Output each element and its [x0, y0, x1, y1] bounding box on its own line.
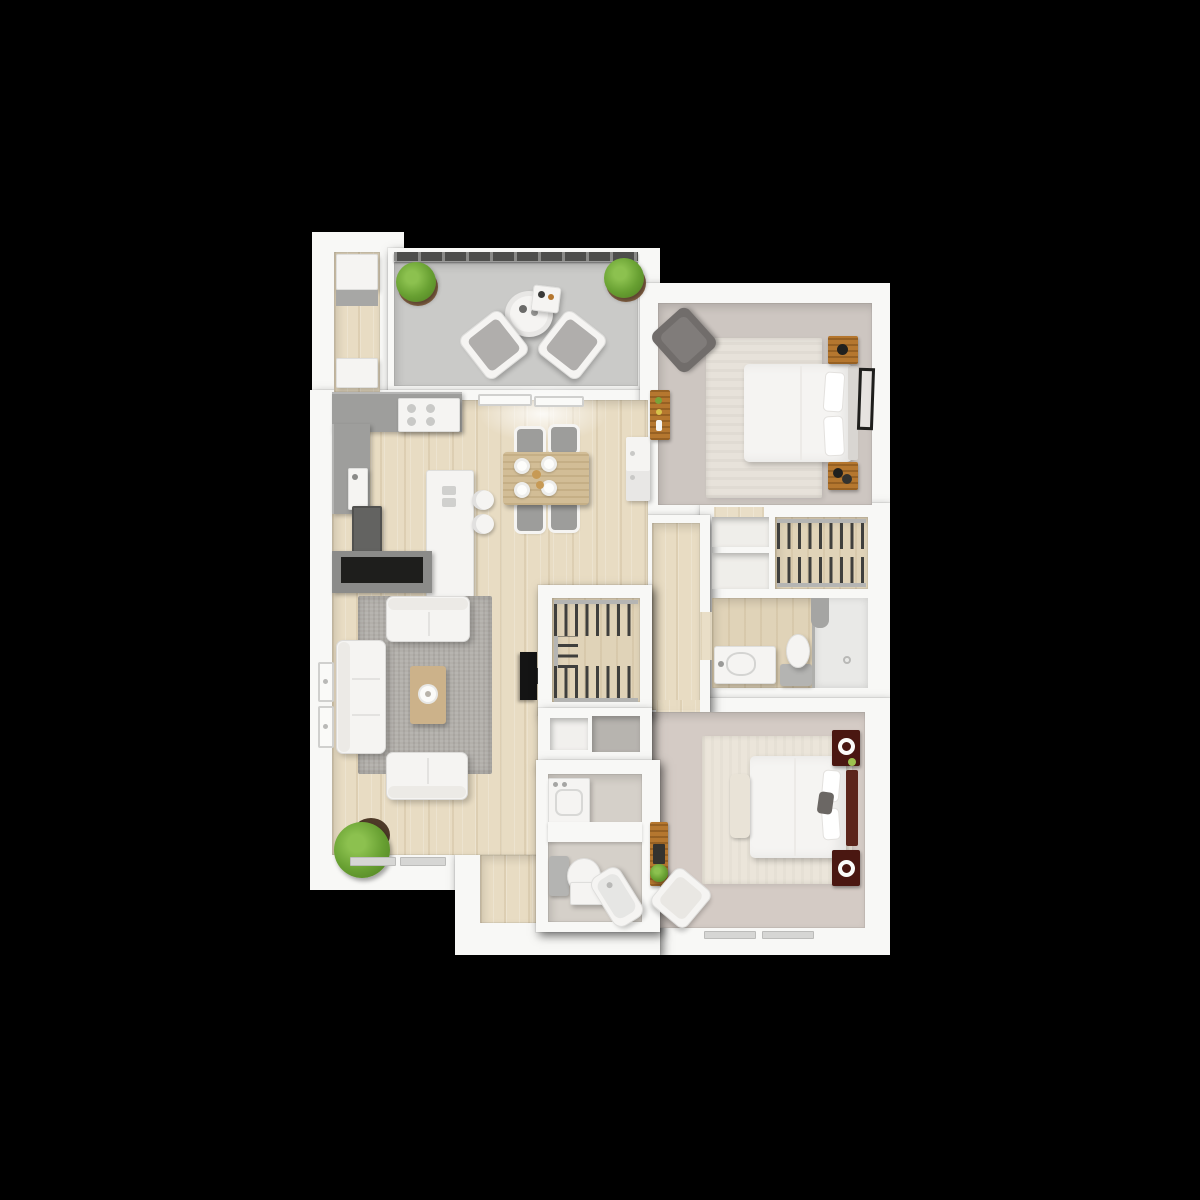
sofa-left [336, 640, 386, 754]
burner-3 [407, 417, 416, 426]
burner-2 [426, 404, 435, 413]
table-lamp-2 [838, 860, 855, 877]
window-handle-1 [323, 679, 328, 684]
tray-item [425, 691, 431, 697]
desk-chair-cushion [658, 875, 704, 922]
nightstand-decor-3 [842, 474, 852, 484]
bedroom2-headboard [846, 770, 858, 846]
duvet-fold-line [800, 366, 802, 460]
hallway-east-floor [652, 523, 700, 710]
bedroom2-window-sill-2 [762, 931, 814, 939]
kitchen-island [426, 470, 474, 598]
burner-1 [407, 404, 416, 413]
loveseat-top [386, 596, 470, 642]
bedroom1-pillow-2 [823, 416, 845, 457]
washer-door [555, 789, 583, 816]
dresser-item-green [655, 397, 662, 404]
closet1-clothes-rod-bottom [777, 557, 866, 587]
bathroom1-door-opening [700, 612, 712, 660]
bedroom2-duvet-fold [794, 758, 796, 856]
living-window-sill-1 [350, 857, 396, 866]
table-lamp-1 [838, 738, 855, 755]
balcony-railing [394, 252, 638, 261]
refrigerator-dark [352, 506, 382, 554]
closet1-clothes-rod-top [777, 519, 866, 549]
bath2-partition-wall [548, 822, 642, 842]
bedroom1-nightstand-bottom [828, 462, 858, 490]
bedroom2-throw-pillow [817, 791, 835, 815]
washer-knob-1 [553, 782, 558, 787]
bedroom2-nightstand-top [832, 730, 860, 766]
patio-table-cup-1 [519, 305, 527, 313]
walkin-clothes-rod-left [554, 636, 578, 668]
bath1-faucet [718, 661, 724, 667]
shower1-column [811, 598, 829, 628]
media-console [332, 551, 432, 593]
faucet [352, 474, 358, 480]
hall-niche-right [592, 716, 640, 752]
nightstand-decor-1 [837, 344, 848, 355]
apartment-floor-plan [0, 0, 1200, 1200]
bedroom2-nightstand-bottom [832, 850, 860, 886]
living-window-left-1 [318, 662, 334, 702]
hall-niche-left [550, 718, 588, 750]
place-setting-3 [514, 482, 530, 498]
toilet1-bowl [786, 634, 810, 668]
shower1-drain [843, 656, 851, 664]
linen-shelf-lower [712, 553, 769, 589]
place-setting-2 [541, 456, 557, 472]
nightstand2-plant [848, 758, 856, 766]
dresser-item-white [656, 420, 662, 431]
dining-chair-3 [517, 503, 543, 531]
wall-tv [520, 652, 537, 700]
patio-tray-cup-tan [548, 294, 554, 300]
place-setting-1 [514, 458, 530, 474]
center-bowl-2 [536, 481, 544, 489]
window-handle-2 [323, 724, 328, 729]
shower1 [812, 598, 868, 688]
washer-knob-2 [562, 782, 567, 787]
balcony-door-header-1 [478, 394, 532, 406]
island-sink-basin-2 [442, 498, 456, 507]
bath1-basin [726, 652, 756, 676]
loveseat-bottom [386, 752, 468, 800]
center-bowl-1 [532, 470, 541, 479]
island-sink-basin-1 [442, 486, 456, 495]
patio-tray-cup-dark [538, 291, 545, 298]
washer-dryer-unit [548, 778, 590, 826]
appliance-counter [336, 290, 378, 306]
balcony-plant-1 [396, 262, 436, 302]
burner-4 [426, 417, 435, 426]
walkin-clothes-rod-bottom [554, 666, 638, 702]
living-window-left-2 [318, 706, 334, 748]
linen-shelf-upper [712, 517, 769, 547]
cabinet-handle-1 [630, 451, 635, 456]
dining-chair-2 [551, 427, 577, 453]
bedroom1-pillow-1 [823, 371, 846, 412]
hallway-lower-floor [480, 855, 538, 923]
coffee-table [410, 666, 446, 724]
desk-monitor [653, 844, 665, 864]
balcony-plant-2 [604, 258, 644, 298]
kitchen-sink [348, 468, 368, 510]
balcony-door-header-2 [534, 396, 584, 407]
dining-chair-4 [551, 502, 577, 530]
bath1-vanity [714, 646, 776, 684]
living-window-sill-2 [400, 857, 446, 866]
bedroom1-dresser [650, 390, 670, 440]
patio-tray-table [531, 284, 562, 313]
walkin-clothes-rod-top [554, 600, 638, 636]
cooktop [398, 398, 460, 432]
tall-cabinet [626, 437, 650, 501]
bar-stool-2 [472, 514, 494, 534]
bar-stool-1 [472, 490, 494, 510]
bedroom1-nightstand-top [828, 336, 858, 364]
stacked-appliance [336, 254, 378, 290]
bedroom2-door-opening [656, 700, 700, 712]
bedroom2-window-sill-1 [704, 931, 756, 939]
floor-plan-canvas [0, 0, 1200, 1200]
living-floor-plant [334, 822, 390, 878]
media-console-screen [341, 557, 423, 583]
bedroom2-foot-bench [730, 774, 750, 838]
bedroom1-wall-art [857, 368, 875, 431]
cabinet-handle-2 [630, 475, 635, 480]
utility-cabinet [336, 358, 378, 388]
toilet2-tank [549, 856, 569, 896]
dresser-item-yellow [656, 409, 662, 415]
